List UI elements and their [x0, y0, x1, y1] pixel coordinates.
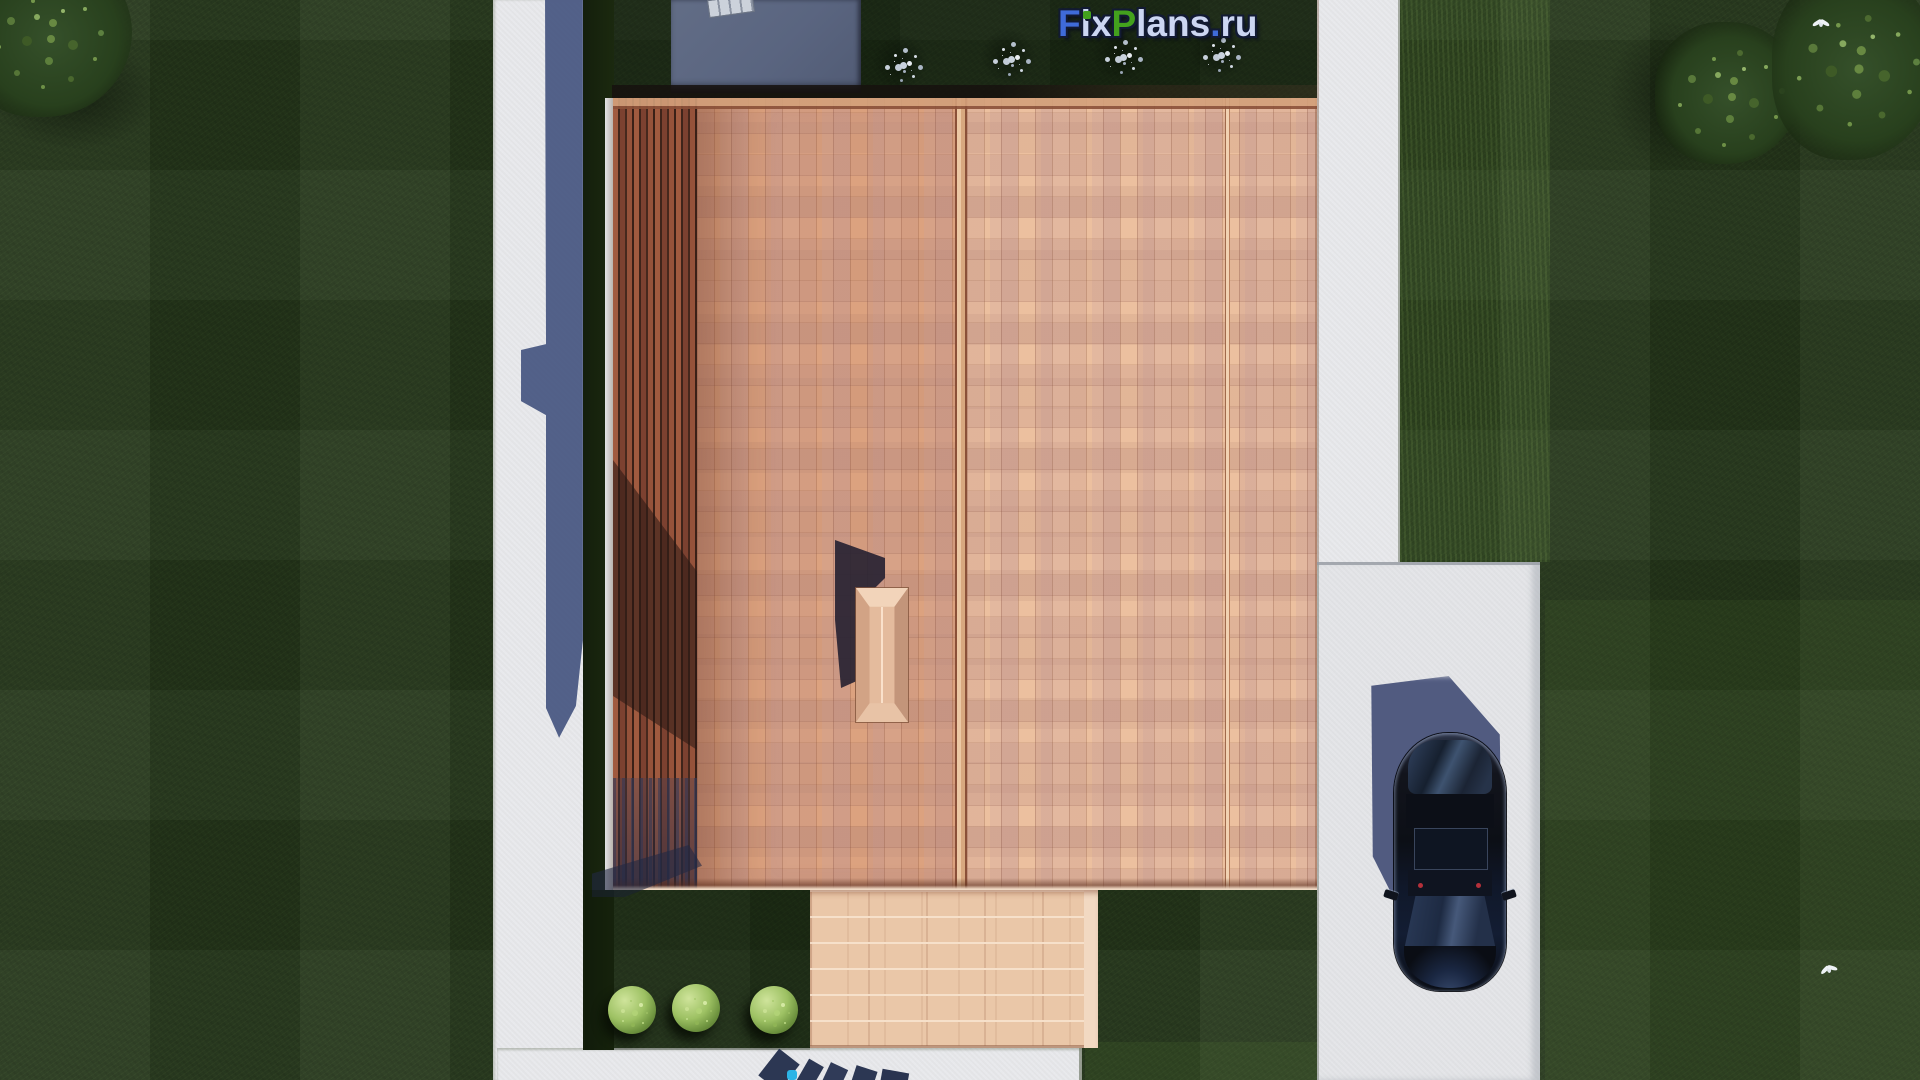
car-rear-window — [1408, 740, 1492, 794]
logo-seg-p: P — [1111, 3, 1136, 44]
green-bush-2 — [672, 984, 720, 1032]
car-windshield — [1402, 896, 1498, 946]
aerial-site-render: FixPlans.ru — [0, 0, 1920, 1080]
logo-seg-lans: lans — [1136, 3, 1210, 44]
green-bush-1 — [608, 986, 656, 1034]
lawn-bright-bottom-right — [1545, 600, 1920, 1080]
flower-bush-2 — [980, 28, 1036, 84]
roof-ridge-line-1 — [955, 98, 967, 890]
car-taillight-right — [1476, 883, 1481, 888]
roof-section-right — [967, 98, 1317, 890]
flat-roof-wing — [671, 0, 861, 93]
roof-north-ridge-cap — [613, 98, 1317, 109]
lawn-bright-bottom-middle — [1085, 1042, 1320, 1080]
logo-i-dot — [1083, 11, 1091, 19]
flower-bush-1 — [872, 34, 928, 90]
logo-seg-i: i — [1081, 3, 1091, 44]
watermark-accent-dot — [787, 1070, 797, 1080]
tree-top-right-2 — [1772, 0, 1920, 160]
roof-eave-shadow — [612, 85, 1317, 99]
logo-seg-x: x — [1091, 3, 1112, 44]
car-roof — [1406, 794, 1494, 828]
green-bush-3 — [750, 986, 798, 1034]
car-taillight-left — [1418, 883, 1423, 888]
logo-seg-dot: . — [1210, 3, 1220, 44]
roof-section-middle — [697, 98, 959, 890]
roof-ridge-line-2 — [1225, 98, 1233, 890]
bird-on-tree-icon — [1812, 18, 1830, 30]
roof-south-eave — [613, 878, 1317, 890]
lawn-bright-top-right — [1400, 0, 1550, 562]
chimney-ridge — [881, 607, 883, 703]
house-roof — [613, 98, 1317, 890]
roof-west-fascia — [605, 98, 613, 890]
logo-seg-f: F — [1058, 3, 1081, 44]
walkway-east — [1317, 0, 1400, 564]
car-sunroof — [1414, 828, 1488, 870]
fixplans-logo: FixPlans.ru — [1058, 4, 1257, 44]
car-hood — [1404, 946, 1496, 988]
car — [1394, 733, 1506, 991]
entrance-terrace — [810, 890, 1098, 1048]
logo-seg-ru: ru — [1220, 3, 1257, 44]
chimney — [856, 588, 908, 722]
